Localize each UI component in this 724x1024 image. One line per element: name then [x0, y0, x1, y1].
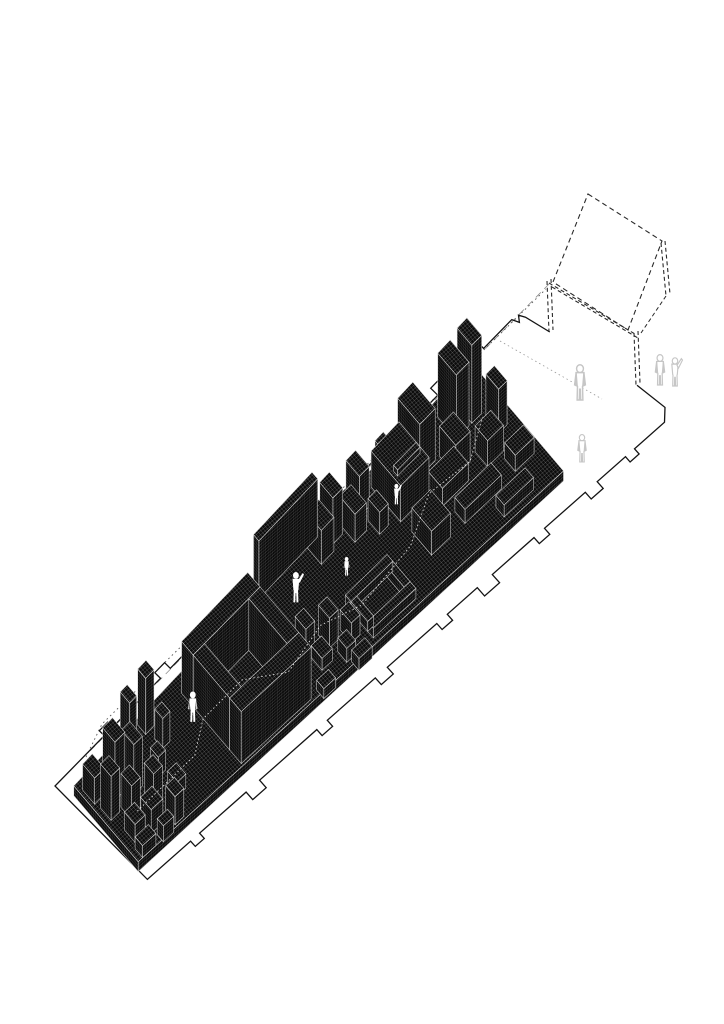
building-block — [138, 660, 154, 734]
dotted-leader-line — [500, 341, 602, 399]
figure-arm — [585, 441, 586, 451]
double-dash-hinge-line — [551, 279, 553, 330]
figure-arm — [663, 362, 664, 373]
double-dash-hinge-line — [665, 241, 670, 294]
figure-head — [293, 572, 299, 579]
dash-connector-line — [641, 296, 666, 333]
ghost-figure-pair-right — [672, 358, 683, 386]
figure-body — [672, 364, 678, 386]
building-massing-layer — [74, 318, 564, 872]
mass-side-face — [146, 670, 154, 735]
figure-head — [579, 435, 584, 441]
double-dash-hinge-line — [634, 333, 636, 385]
double-dash-hinge-line — [661, 243, 666, 296]
double-dash-hinge-line — [549, 283, 635, 334]
figure-head — [672, 358, 677, 364]
drawing-page: Axonometric site massing diagram Black c… — [0, 0, 724, 1024]
double-dash-hinge-line — [547, 281, 549, 332]
mass-side-face — [111, 768, 120, 820]
double-dash-hinge-line — [552, 287, 638, 338]
mass-side-face — [138, 669, 146, 734]
figure-arm — [578, 441, 579, 451]
ghost-figure-pair-left — [655, 355, 664, 385]
figure-arm — [655, 362, 656, 373]
ghost-figure-silhouette — [575, 365, 586, 400]
figure-arm — [584, 373, 585, 385]
axonometric-diagram: Black cross-hatched axonometric building… — [0, 0, 724, 1024]
double-dash-hinge-line — [638, 331, 640, 383]
figure-body — [576, 373, 584, 400]
figure-head — [190, 692, 196, 699]
figure-head — [394, 484, 398, 489]
figure-head — [657, 355, 663, 362]
dashed-panel-layer — [547, 194, 670, 385]
dashed-panel-outline — [553, 194, 662, 330]
figure-head — [577, 365, 584, 373]
figure-body — [579, 441, 585, 462]
figure-head — [345, 557, 349, 561]
figure-body — [657, 361, 664, 385]
ghost-figure-silhouette — [578, 435, 586, 462]
building-block — [101, 756, 120, 821]
figure-arm — [575, 373, 576, 385]
mass-side-face — [472, 335, 482, 423]
